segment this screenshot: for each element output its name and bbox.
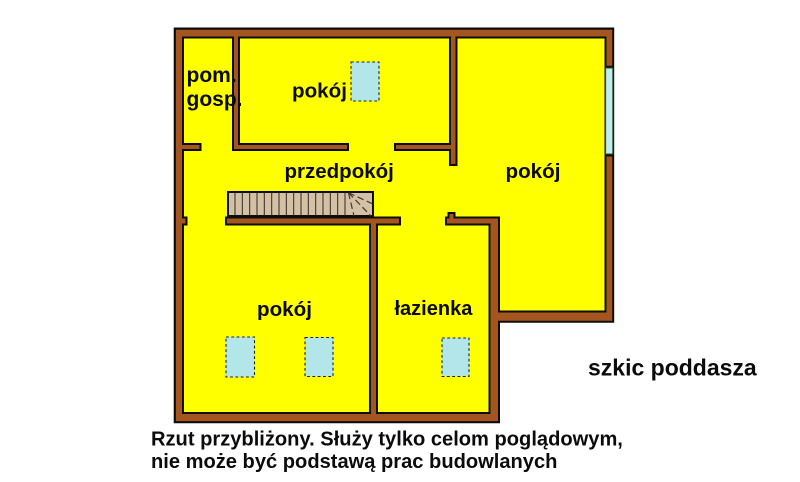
- svg-text:przedpokój: przedpokój: [285, 160, 394, 183]
- svg-text:pokój: pokój: [506, 160, 561, 183]
- svg-text:nie może być podstawą prac bud: nie może być podstawą prac budowlanych: [151, 451, 557, 473]
- svg-text:szkic poddasza: szkic poddasza: [588, 355, 757, 381]
- svg-text:pokój: pokój: [292, 80, 347, 103]
- svg-text:Rzut przybliżony. Służy tylko: Rzut przybliżony. Służy tylko celom pogl…: [151, 429, 623, 451]
- svg-text:pom.: pom.: [187, 64, 237, 87]
- svg-text:pokój: pokój: [257, 298, 312, 321]
- svg-text:gosp.: gosp.: [187, 88, 243, 111]
- svg-text:łazienka: łazienka: [395, 298, 474, 320]
